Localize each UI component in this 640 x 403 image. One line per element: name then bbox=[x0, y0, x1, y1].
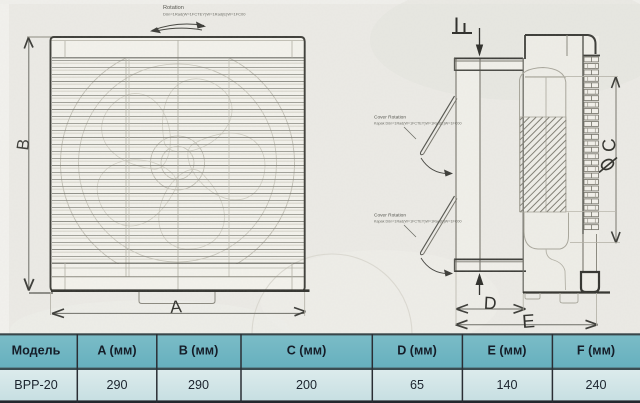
svg-text:B (мм): B (мм) bbox=[179, 344, 219, 358]
svg-text:240: 240 bbox=[585, 378, 606, 392]
svg-text:F (мм): F (мм) bbox=[577, 344, 615, 358]
svg-text:Kapak Dön=1Rad(W=1FCTEY)W=1Rad: Kapak Dön=1Rad(W=1FCTEY)W=1Rad(E)W=1FC00 bbox=[374, 122, 462, 126]
svg-text:140: 140 bbox=[496, 378, 517, 392]
svg-text:C (мм): C (мм) bbox=[287, 344, 327, 358]
svg-text:C: C bbox=[598, 138, 620, 153]
svg-text:Rotation: Rotation bbox=[163, 5, 184, 11]
svg-text:E: E bbox=[522, 311, 536, 333]
svg-text:A (мм): A (мм) bbox=[97, 344, 136, 358]
svg-text:Dön=1Rad(W=1FCTEY)W=1Rad(E)W=1: Dön=1Rad(W=1FCTEY)W=1Rad(E)W=1FC00 bbox=[163, 12, 246, 17]
svg-text:290: 290 bbox=[188, 378, 209, 392]
svg-text:D (мм): D (мм) bbox=[397, 344, 437, 358]
svg-text:Cover Rotation: Cover Rotation bbox=[374, 213, 406, 219]
svg-text:65: 65 bbox=[410, 378, 424, 392]
svg-text:B: B bbox=[13, 138, 33, 152]
svg-text:200: 200 bbox=[296, 378, 317, 392]
svg-text:290: 290 bbox=[106, 378, 127, 392]
svg-text:E (мм): E (мм) bbox=[488, 344, 527, 358]
svg-text:D: D bbox=[483, 293, 497, 314]
svg-text:Cover Rotation: Cover Rotation bbox=[374, 115, 406, 121]
svg-text:ВРР-20: ВРР-20 bbox=[14, 378, 57, 392]
svg-text:A: A bbox=[169, 296, 182, 317]
svg-text:Модель: Модель bbox=[12, 344, 61, 358]
svg-text:Kapak Dön=1Rad(W=1FCTEY)W=1Rad: Kapak Dön=1Rad(W=1FCTEY)W=1Rad(E)W=1FC00 bbox=[374, 220, 462, 224]
